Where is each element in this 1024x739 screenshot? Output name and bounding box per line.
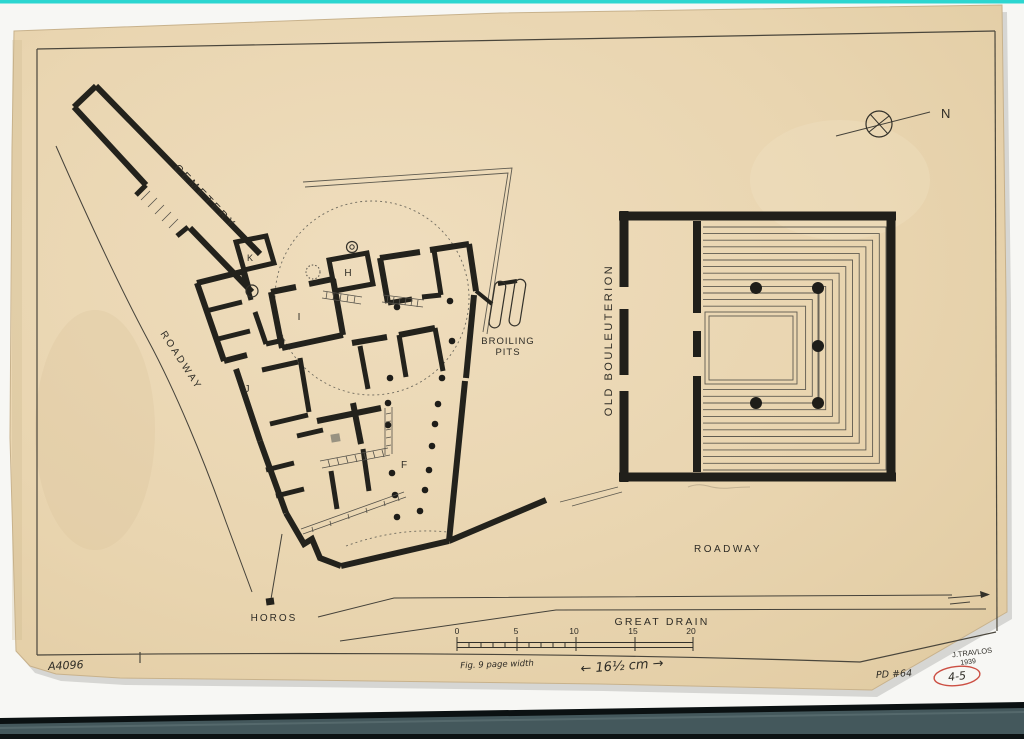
roadway-south-label: ROADWAY: [694, 544, 762, 555]
paper-highlight: [750, 120, 930, 240]
paper-stain: [35, 310, 155, 550]
negative-number: A4096: [47, 658, 84, 673]
scale-tick-5: 5: [514, 626, 519, 636]
room-j-label: J: [245, 384, 250, 395]
broiling-pits-label-1: BROILING: [481, 336, 534, 347]
room-k-label: K: [247, 253, 253, 263]
room-f-label: F: [401, 460, 407, 471]
scanned-drawing: N: [0, 0, 1024, 739]
room-i-label: I: [298, 312, 301, 323]
plan-svg: N: [0, 0, 1024, 739]
great-drain-label: GREAT DRAIN: [615, 616, 710, 628]
horos-label: HOROS: [251, 613, 298, 624]
scanner-cyan-strip: [0, 0, 1024, 4]
scale-tick-10: 10: [569, 626, 579, 636]
scale-tick-0: 0: [455, 626, 460, 636]
room-h-label: H: [344, 268, 351, 279]
north-label: N: [941, 106, 950, 121]
old-bouleuterion-label: OLD BOULEUTERION: [603, 264, 615, 416]
red-circle-note: 4-5: [947, 669, 966, 684]
horos-stone: [266, 597, 275, 605]
plate-number: PD #64: [876, 668, 913, 681]
grey-block: [330, 433, 340, 442]
paper-left-crease: [12, 40, 22, 640]
broiling-pits-label-2: PITS: [495, 347, 520, 358]
